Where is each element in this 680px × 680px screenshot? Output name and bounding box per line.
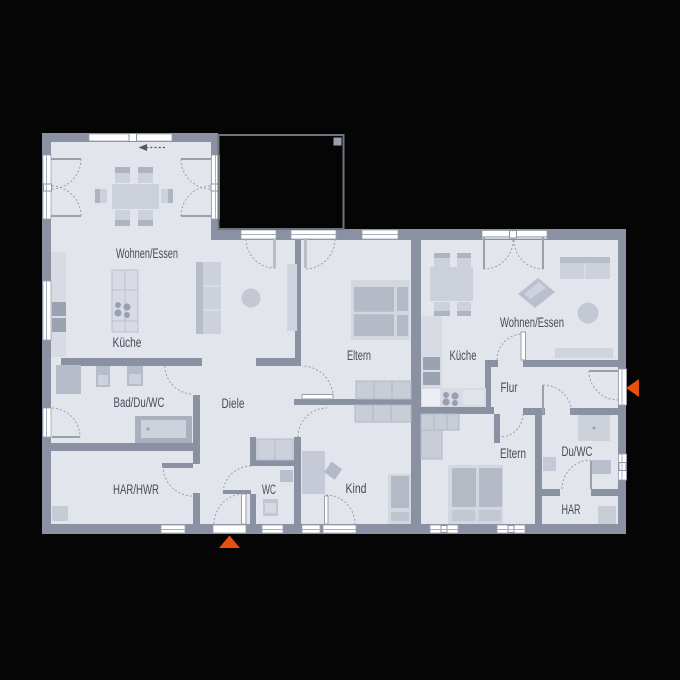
svg-text:Eltern: Eltern — [347, 348, 371, 363]
svg-text:Eltern: Eltern — [500, 446, 526, 461]
svg-text:Du/WC: Du/WC — [562, 444, 593, 459]
svg-text:Küche: Küche — [113, 335, 142, 350]
svg-text:Kind: Kind — [346, 481, 367, 496]
svg-text:HAR: HAR — [562, 502, 581, 517]
svg-text:Flur: Flur — [501, 380, 518, 395]
svg-text:HAR/HWR: HAR/HWR — [113, 482, 159, 497]
svg-text:Wohnen/Essen: Wohnen/Essen — [116, 246, 178, 261]
svg-text:Bad/Du/WC: Bad/Du/WC — [114, 395, 165, 410]
svg-text:Diele: Diele — [222, 396, 245, 411]
svg-text:WC: WC — [262, 482, 276, 497]
svg-text:Wohnen/Essen: Wohnen/Essen — [500, 315, 564, 330]
svg-text:Küche: Küche — [450, 348, 477, 363]
